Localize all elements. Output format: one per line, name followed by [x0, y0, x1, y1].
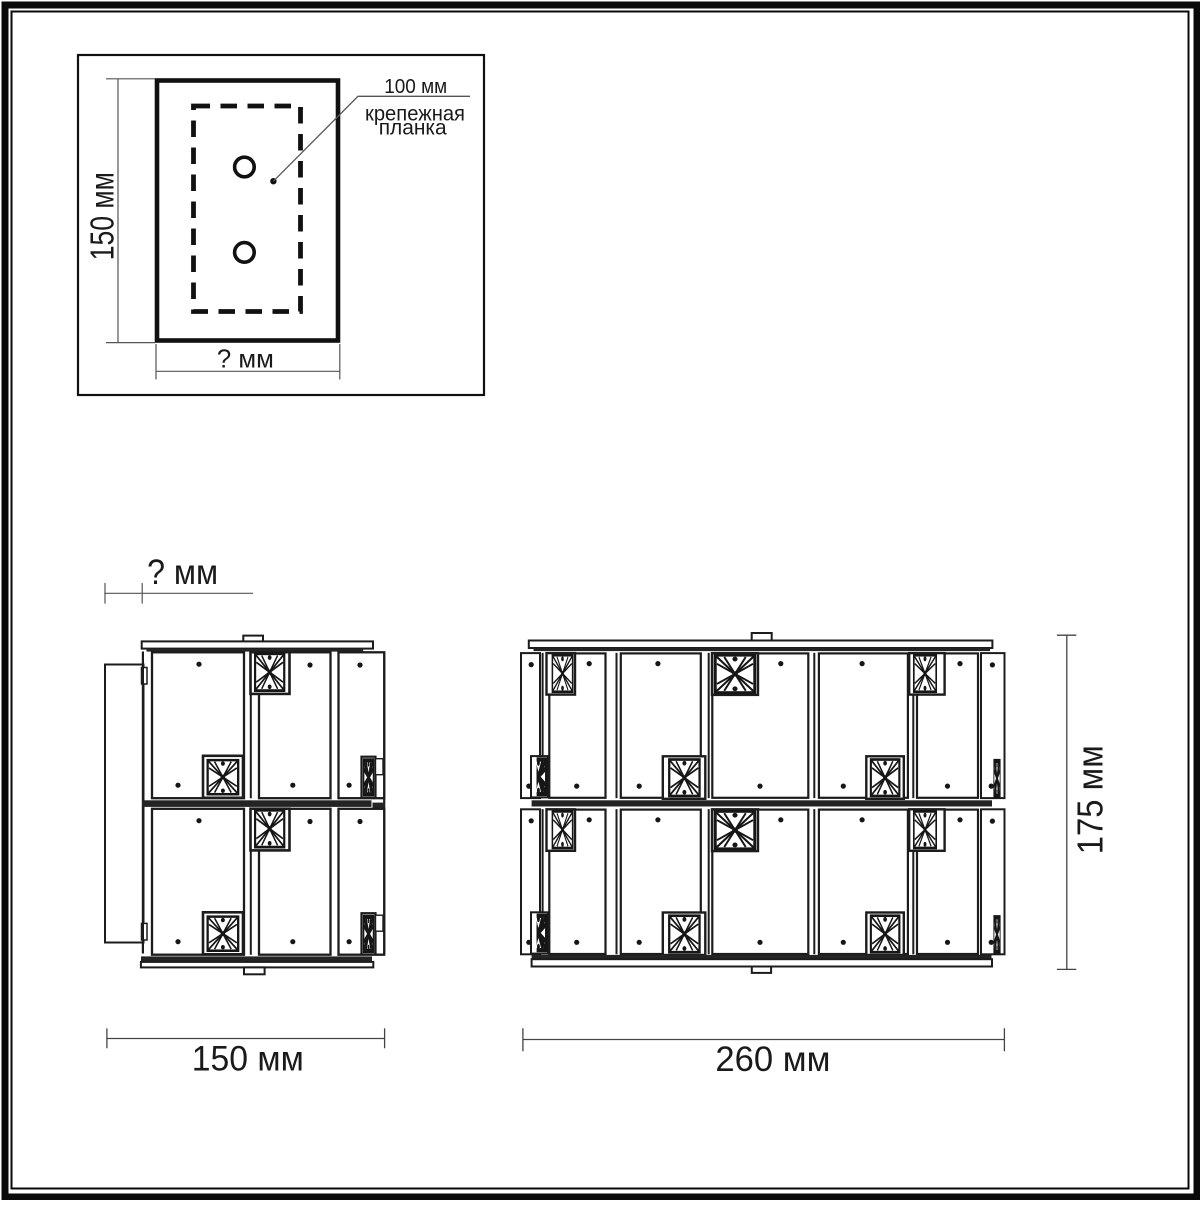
- svg-text:260 мм: 260 мм: [715, 1040, 830, 1079]
- svg-text:планка: планка: [379, 116, 447, 140]
- svg-text:150 мм: 150 мм: [84, 172, 121, 260]
- svg-text:175 мм: 175 мм: [1070, 745, 1111, 854]
- svg-text:? мм: ? мм: [147, 553, 218, 592]
- svg-text:? мм: ? мм: [217, 344, 274, 374]
- svg-text:100 мм: 100 мм: [384, 75, 447, 98]
- svg-text:150 мм: 150 мм: [192, 1040, 304, 1079]
